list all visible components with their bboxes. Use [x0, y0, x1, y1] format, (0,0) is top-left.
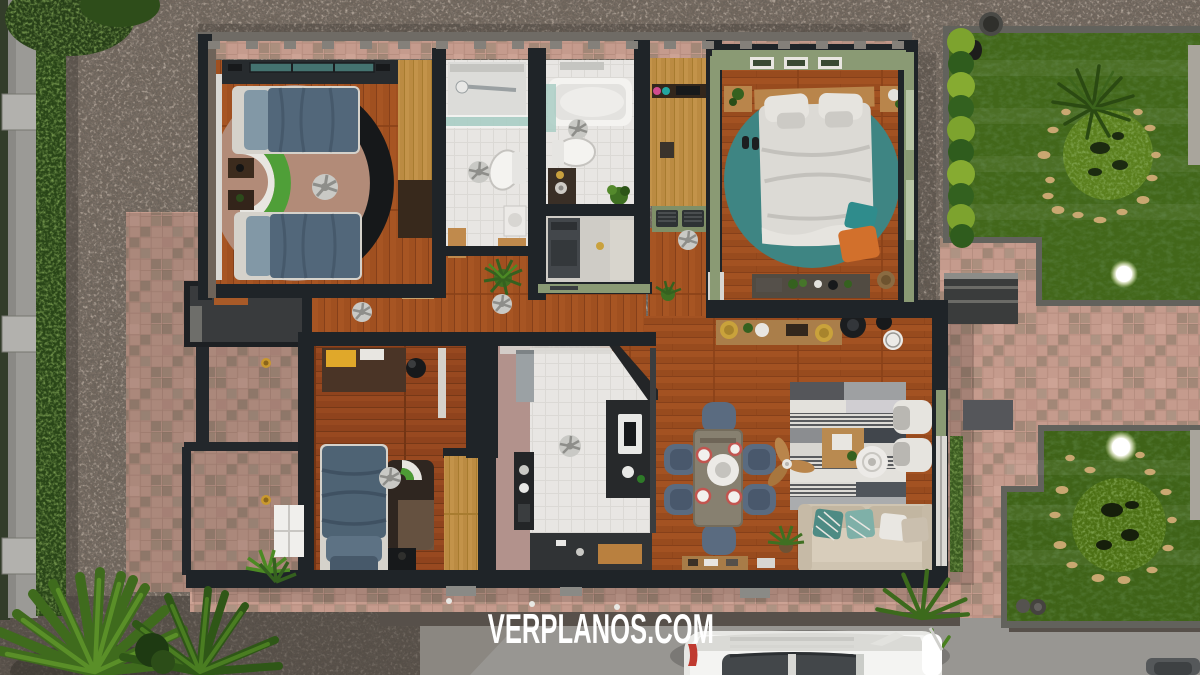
- svg-text:VERPLANOS.COM: VERPLANOS.COM: [488, 607, 714, 653]
